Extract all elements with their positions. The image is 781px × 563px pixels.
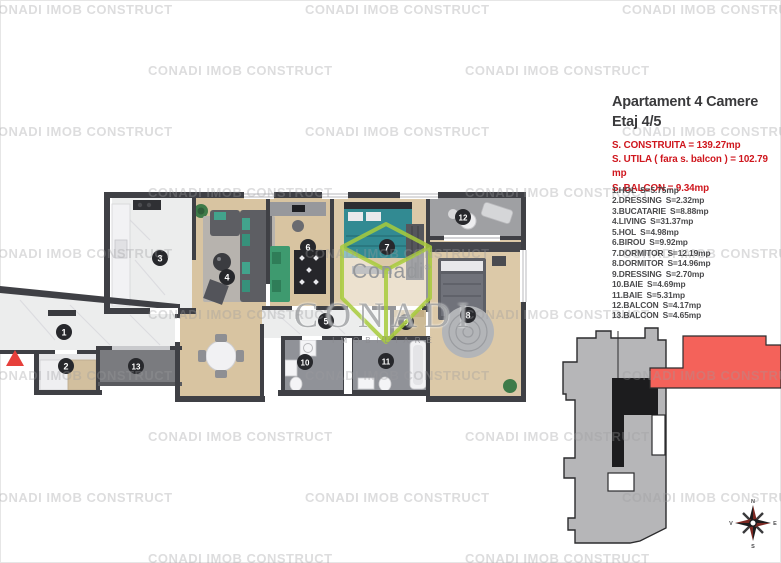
room-badge-3: 3 <box>152 250 168 266</box>
toilet <box>379 377 391 391</box>
svg-text:12: 12 <box>459 214 468 223</box>
bath11-sink <box>358 378 374 389</box>
room-badge-9: 9 <box>398 314 414 330</box>
bed-bench <box>352 266 392 274</box>
svg-text:9: 9 <box>403 318 408 328</box>
svg-text:10: 10 <box>301 359 310 368</box>
title-line-1: Apartament 4 Camere <box>612 92 758 112</box>
room-list-item: 7.DORMITORS=12.19mp <box>612 248 711 258</box>
bath10-sink <box>285 360 297 376</box>
room-badge-5: 5 <box>318 313 334 329</box>
room-list: 1.HOLS=5.75mp 2.DRESSINGS=2.32mp 3.BUCAT… <box>612 185 711 321</box>
kitchen-sink <box>115 240 127 258</box>
svg-text:3: 3 <box>157 254 162 264</box>
toilet <box>290 377 302 391</box>
svg-text:13: 13 <box>132 363 141 372</box>
compass-rose-icon: N E S V <box>729 499 777 550</box>
room-badge-6: 6 <box>300 239 316 255</box>
summary-usable-area: S. UTILA ( fara s. balcon ) = 102.79 mp <box>612 153 781 181</box>
monitor <box>292 205 305 212</box>
svg-text:V: V <box>729 521 733 527</box>
building-notch <box>608 473 634 491</box>
room-badge-8: 8 <box>460 307 476 323</box>
room-badge-11: 11 <box>378 353 394 369</box>
svg-text:N: N <box>751 499 755 505</box>
room-list-item: 9.DRESSINGS=2.70mp <box>612 269 711 279</box>
svg-text:E: E <box>773 521 777 527</box>
svg-text:S: S <box>751 544 755 550</box>
svg-text:6: 6 <box>305 243 310 253</box>
room-badge-1: 1 <box>56 324 72 340</box>
room-list-item: 1.HOLS=5.75mp <box>612 185 711 195</box>
room-badge-2: 2 <box>58 358 74 374</box>
dining-table <box>206 341 236 371</box>
svg-text:8: 8 <box>465 311 470 321</box>
room-list-item: 3.BUCATARIES=8.88mp <box>612 206 711 216</box>
room-badge-12: 12 <box>455 209 471 225</box>
room-list-item: 2.DRESSINGS=2.32mp <box>612 195 711 205</box>
site-plan <box>563 328 781 543</box>
room-list-item: 12.BALCONS=4.17mp <box>612 300 711 310</box>
nightstand <box>492 256 506 266</box>
wardrobe-8 <box>430 242 521 252</box>
room-badge-13: 13 <box>128 358 144 374</box>
bed7-headboard <box>344 202 412 209</box>
floor-plan-page: 1 2 3 4 5 6 7 8 9 10 11 12 13 <box>0 0 781 563</box>
room-badge-7: 7 <box>379 239 395 255</box>
wardrobe <box>406 224 424 280</box>
washing-machine <box>300 340 316 356</box>
svg-text:11: 11 <box>382 358 391 367</box>
coffee-table <box>213 253 231 271</box>
title-line-2: Etaj 4/5 <box>612 112 758 132</box>
room-list-item: 13.BALCONS=4.65mp <box>612 310 711 320</box>
svg-text:1: 1 <box>61 328 66 338</box>
apartment-title: Apartament 4 Camere Etaj 4/5 <box>612 92 758 132</box>
room-list-item: 11.BAIES=5.31mp <box>612 290 711 300</box>
room-badge-10: 10 <box>297 354 313 370</box>
svg-text:5: 5 <box>323 317 328 327</box>
office-chair <box>292 220 304 232</box>
plant <box>503 379 517 393</box>
building-notch <box>652 415 665 455</box>
room-badge-4: 4 <box>219 269 235 285</box>
console <box>48 310 76 316</box>
apartment-highlight <box>650 336 781 388</box>
room-list-item: 8.DORMITORS=14.96mp <box>612 258 711 268</box>
patterned-rug <box>294 250 326 294</box>
svg-text:4: 4 <box>224 273 229 283</box>
room-list-item: 6.BIROUS=9.92mp <box>612 237 711 247</box>
room-list-item: 10.BAIES=4.69mp <box>612 279 711 289</box>
room-list-item: 4.LIVINGS=31.37mp <box>612 216 711 226</box>
room-list-item: 5.HOLS=4.98mp <box>612 227 711 237</box>
svg-text:2: 2 <box>63 362 68 372</box>
summary-built-area: S. CONSTRUITA = 139.27mp <box>612 139 781 153</box>
svg-text:7: 7 <box>384 243 389 253</box>
